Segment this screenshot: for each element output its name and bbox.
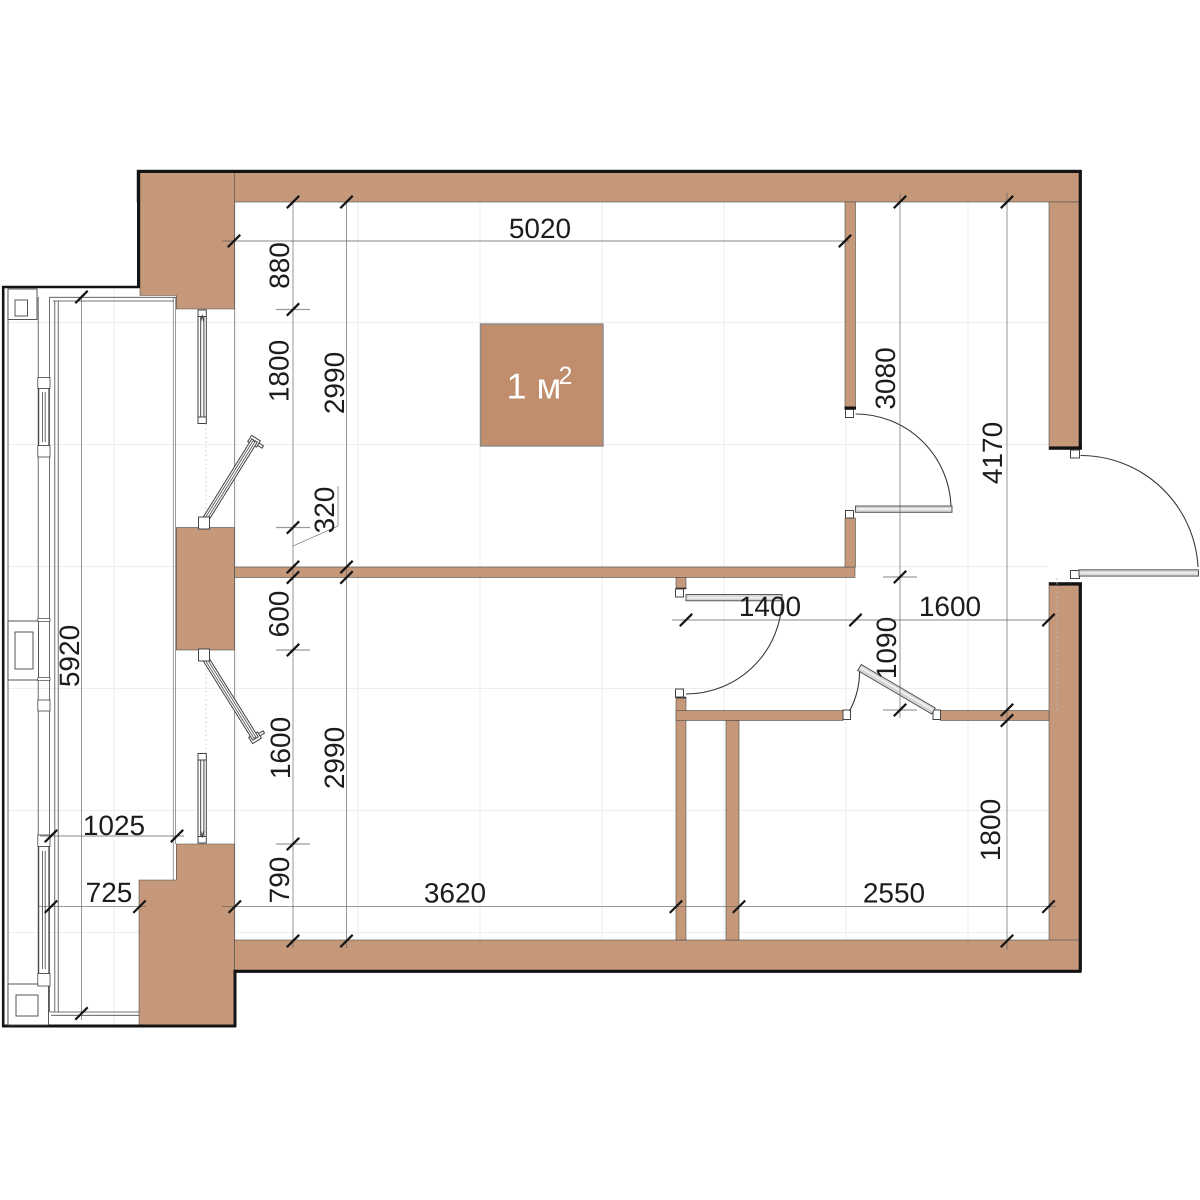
svg-text:3620: 3620 [424, 878, 486, 909]
svg-text:1600: 1600 [919, 591, 981, 622]
svg-text:1090: 1090 [871, 617, 902, 679]
svg-text:2: 2 [559, 362, 573, 390]
svg-text:1400: 1400 [739, 591, 801, 622]
svg-text:5020: 5020 [509, 213, 571, 244]
svg-text:1800: 1800 [264, 340, 295, 402]
svg-text:2990: 2990 [319, 352, 350, 414]
svg-text:320: 320 [309, 487, 340, 534]
svg-text:5920: 5920 [54, 625, 85, 687]
svg-text:600: 600 [264, 591, 295, 638]
svg-text:790: 790 [264, 857, 295, 904]
svg-text:3080: 3080 [870, 347, 901, 409]
svg-text:1600: 1600 [265, 717, 296, 779]
svg-text:1800: 1800 [975, 799, 1006, 861]
svg-text:2990: 2990 [319, 727, 350, 789]
svg-text:1 м: 1 м [507, 366, 562, 407]
svg-text:2550: 2550 [863, 878, 925, 909]
svg-text:1025: 1025 [83, 810, 145, 841]
svg-text:725: 725 [86, 877, 133, 908]
svg-text:4170: 4170 [977, 422, 1008, 484]
svg-text:880: 880 [264, 242, 295, 289]
